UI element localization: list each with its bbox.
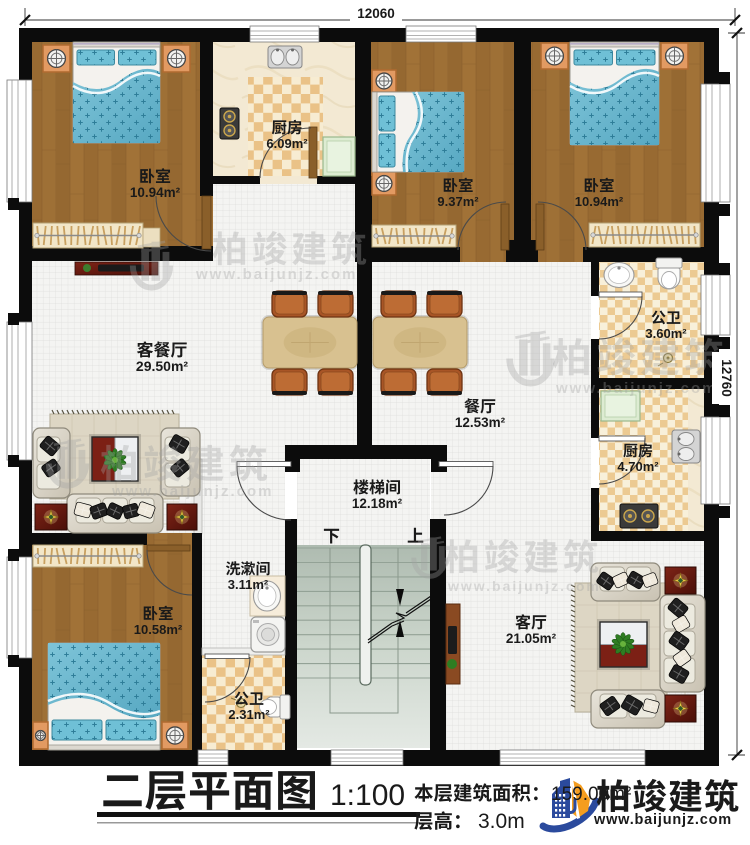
svg-text:www.baijunjz.com: www.baijunjz.com <box>555 380 717 397</box>
svg-text:www.baijunjz.com: www.baijunjz.com <box>111 483 273 500</box>
svg-text:10.94m²: 10.94m² <box>130 185 181 200</box>
svg-text:9.37m²: 9.37m² <box>437 194 479 209</box>
svg-text:12.18m²: 12.18m² <box>352 496 403 511</box>
svg-text:www.baijunjz.com: www.baijunjz.com <box>195 266 357 283</box>
svg-text:12060: 12060 <box>357 6 395 21</box>
svg-text:6.09m²: 6.09m² <box>266 136 308 151</box>
svg-text:3.11m²: 3.11m² <box>228 577 269 592</box>
svg-text:www.baijunjz.com: www.baijunjz.com <box>447 578 601 594</box>
svg-text:1:100: 1:100 <box>330 779 405 812</box>
svg-text:10.58m²: 10.58m² <box>134 622 183 637</box>
svg-text:29.50m²: 29.50m² <box>136 358 188 374</box>
svg-text:4.70m²: 4.70m² <box>617 459 659 474</box>
svg-text:3.0m: 3.0m <box>478 810 525 833</box>
svg-text:12760: 12760 <box>719 359 734 397</box>
svg-text:21.05m²: 21.05m² <box>506 631 557 646</box>
svg-text:2.31m²: 2.31m² <box>228 707 270 722</box>
svg-text:www.baijunjz.com: www.baijunjz.com <box>593 812 732 828</box>
svg-text:12.53m²: 12.53m² <box>455 415 506 430</box>
svg-text:10.94m²: 10.94m² <box>575 194 624 209</box>
